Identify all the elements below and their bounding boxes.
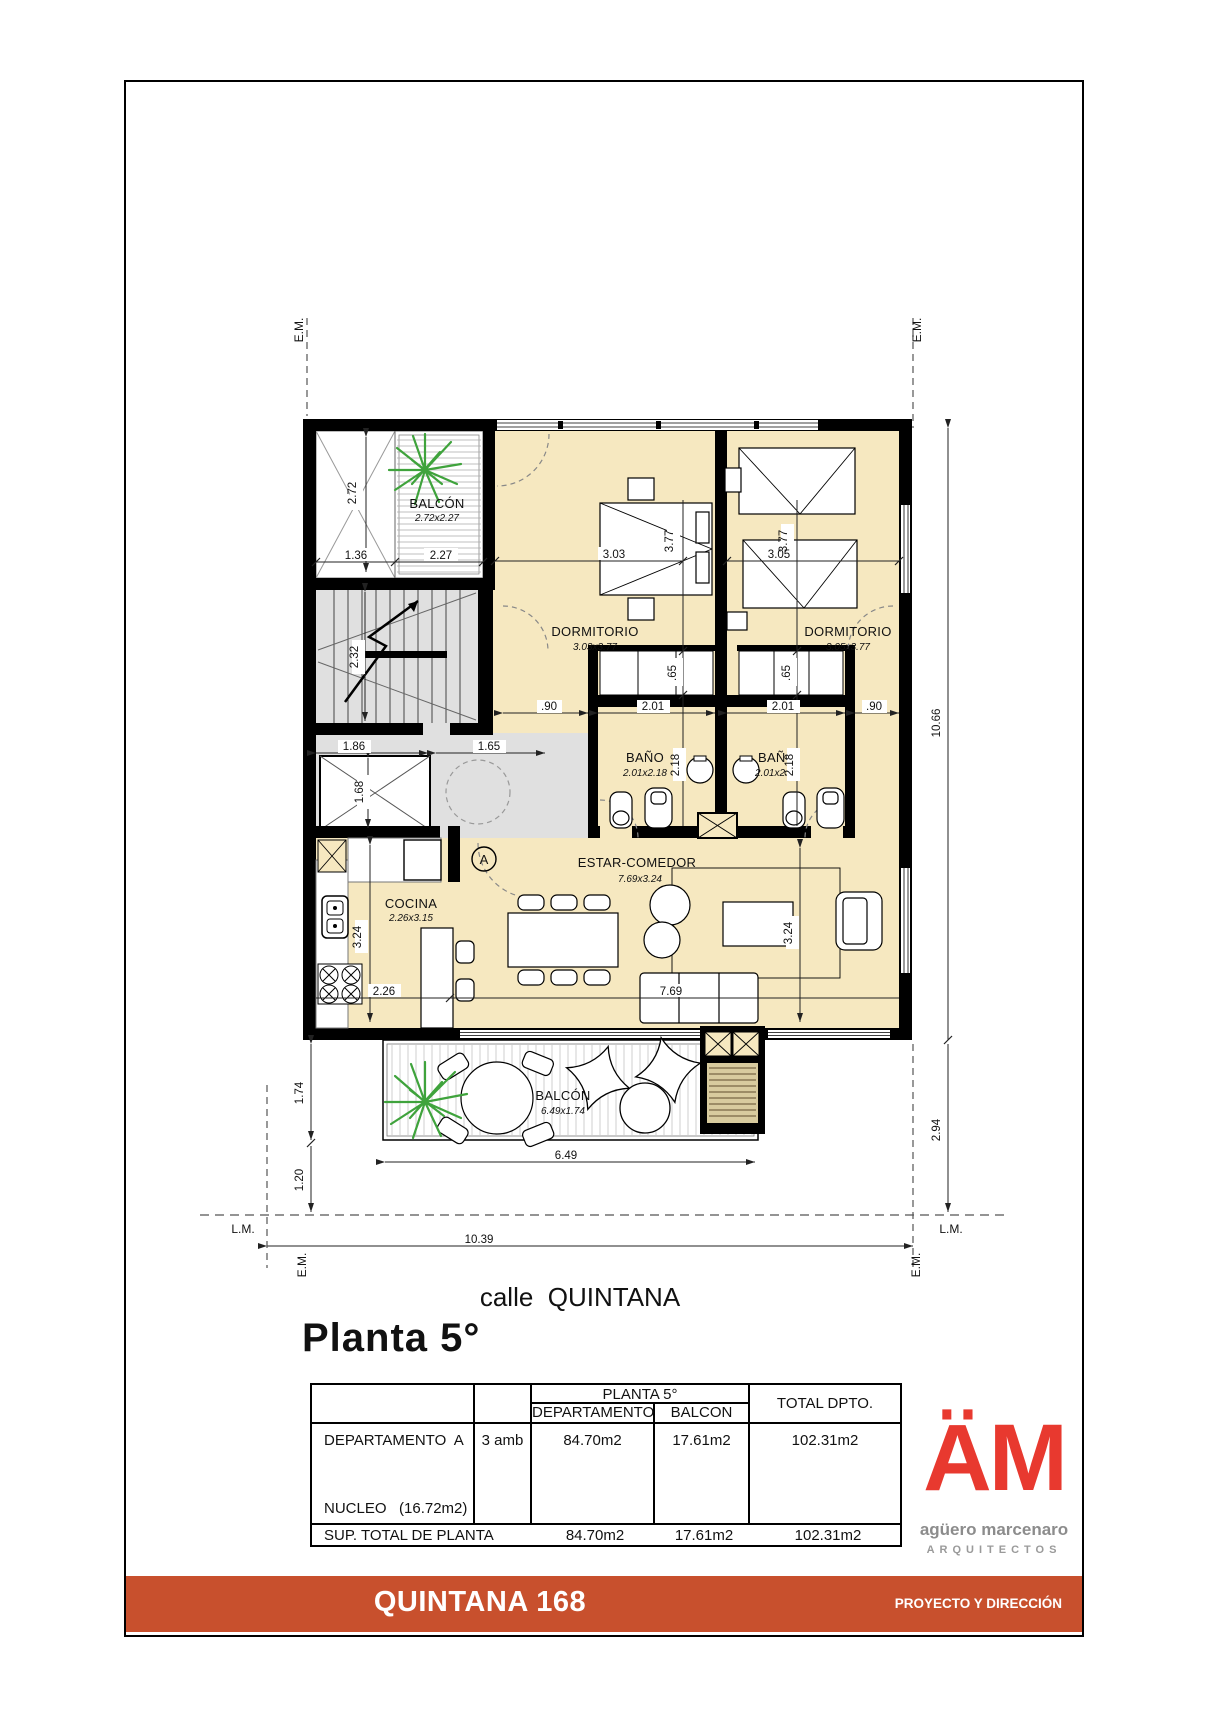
- room-label-estar-comedor: ESTAR-COMEDOR: [578, 855, 697, 870]
- dim-2-94: 2.94: [931, 1118, 943, 1141]
- dim-7-69: 7.69: [660, 986, 682, 998]
- room-size-balcon-top: 2.72x2.27: [414, 513, 459, 524]
- unit-bal-area: 17.61m2: [655, 1422, 750, 1523]
- room-label-dormitorio-2: DORMITORIO: [804, 624, 891, 639]
- marker-em-bottom-right: E.M.: [909, 1253, 923, 1278]
- dining-set: [508, 895, 618, 985]
- room-size-estar-comedor: 7.69x3.24: [618, 874, 662, 885]
- dim-1-36: 1.36: [345, 550, 367, 562]
- logo-firm-name: agüero marcenaro: [905, 1520, 1083, 1540]
- unit-dep-area: 84.70m2: [532, 1422, 655, 1523]
- dim-3-77-a: 3.77: [664, 530, 676, 552]
- project-role: PROYECTO Y DIRECCIÓN: [895, 1596, 1062, 1611]
- dim-3-03: 3.03: [603, 549, 625, 561]
- table-header-departamento: DEPARTAMENTO: [532, 1404, 655, 1422]
- marker-em-top-left: E.M.: [292, 318, 306, 343]
- dim-10-66: 10.66: [931, 709, 943, 738]
- total-total-area: 102.31m2: [795, 1527, 862, 1544]
- dim-2-18-b: 2.18: [784, 754, 796, 776]
- dim-2-01-b: 2.01: [772, 701, 794, 713]
- dim-65-a: .65: [667, 665, 679, 681]
- room-label-bano-1: BAÑO: [626, 750, 664, 765]
- dim-90-b: .90: [866, 701, 882, 713]
- footer-bar: QUINTANA 168 PROYECTO Y DIRECCIÓN: [126, 1576, 1082, 1632]
- dim-1-74: 1.74: [294, 1081, 306, 1104]
- table-header-total: TOTAL DPTO.: [750, 1385, 900, 1422]
- total-label: SUP. TOTAL DE PLANTA: [324, 1527, 494, 1544]
- dim-2-27: 2.27: [430, 550, 452, 562]
- page-title: Planta 5°: [302, 1316, 480, 1361]
- room-label-balcon-top: BALCÓN: [409, 496, 464, 511]
- room-label-balcon-bottom: BALCÓN: [535, 1088, 590, 1103]
- table-row-unit: DEPARTAMENTO A NUCLEO (16.72m2): [312, 1422, 475, 1523]
- logo-subtitle: ARQUITECTOS: [905, 1544, 1083, 1556]
- table-cell-empty-1: [312, 1385, 475, 1422]
- unit-amb: 3 amb: [475, 1422, 532, 1523]
- dim-2-01-a: 2.01: [642, 701, 664, 713]
- dim-2-26: 2.26: [373, 986, 395, 998]
- utility-block: [700, 1026, 765, 1134]
- room-size-cocina: 2.26x3.15: [388, 913, 433, 924]
- dim-10-39: 10.39: [465, 1234, 494, 1246]
- floor-plan-sheet: { "page": { "street_label": "calle QUINT…: [0, 0, 1216, 1728]
- street-label: calle QUINTANA: [380, 1282, 780, 1313]
- room-label-dormitorio-1: DORMITORIO: [551, 624, 638, 639]
- dim-1-86: 1.86: [343, 741, 365, 753]
- dim-2-72: 2.72: [347, 482, 359, 504]
- marker-em-top-right: E.M.: [910, 318, 924, 343]
- dim-1-65: 1.65: [478, 741, 500, 753]
- dim-90-a: .90: [541, 701, 557, 713]
- logo-monogram: ÄM: [905, 1398, 1083, 1518]
- room-size-dormitorio-1: 3.03x3.77: [573, 642, 617, 653]
- marker-em-bottom-left: E.M.: [295, 1253, 309, 1278]
- dim-65-b: .65: [781, 665, 793, 681]
- marker-lm-left: L.M.: [231, 1222, 254, 1236]
- dim-3-24-kitchen: 3.24: [352, 925, 364, 948]
- table-header-planta: PLANTA 5°: [532, 1385, 750, 1404]
- dim-1-68: 1.68: [354, 781, 366, 803]
- area-table: PLANTA 5° TOTAL DPTO. DEPARTAMENTO BALCO…: [310, 1383, 902, 1547]
- table-header-balcon: BALCON: [655, 1404, 750, 1422]
- marker-lm-right: L.M.: [939, 1222, 962, 1236]
- room-size-bano-1: 2.01x2.18: [622, 768, 667, 779]
- dim-2-32: 2.32: [349, 646, 361, 668]
- unit-nucleo: NUCLEO (16.72m2): [324, 1500, 467, 1517]
- room-size-dormitorio-2: 3.05x3.77: [826, 642, 870, 653]
- table-total-row: SUP. TOTAL DE PLANTA 84.70m2 17.61m2 102…: [312, 1523, 900, 1545]
- total-dep-area: 84.70m2: [566, 1527, 624, 1544]
- table-cell-empty-2: [475, 1385, 532, 1422]
- project-name: QUINTANA 168: [374, 1586, 586, 1619]
- architect-logo: ÄM agüero marcenaro ARQUITECTOS: [905, 1398, 1083, 1556]
- room-size-balcon-bottom: 6.49x1.74: [541, 1106, 585, 1117]
- dim-1-20: 1.20: [294, 1169, 306, 1191]
- dim-6-49: 6.49: [555, 1150, 577, 1162]
- dim-3-77-b: 3.77: [778, 530, 790, 552]
- dim-2-18-a: 2.18: [670, 754, 682, 776]
- unit-name: DEPARTAMENTO A: [324, 1432, 467, 1449]
- svg-text:A: A: [480, 852, 489, 867]
- dim-3-24-living: 3.24: [783, 921, 795, 944]
- total-bal-area: 17.61m2: [675, 1527, 733, 1544]
- duct-shaft: [698, 813, 737, 838]
- unit-total-area: 102.31m2: [750, 1422, 900, 1523]
- room-label-cocina: COCINA: [385, 896, 437, 911]
